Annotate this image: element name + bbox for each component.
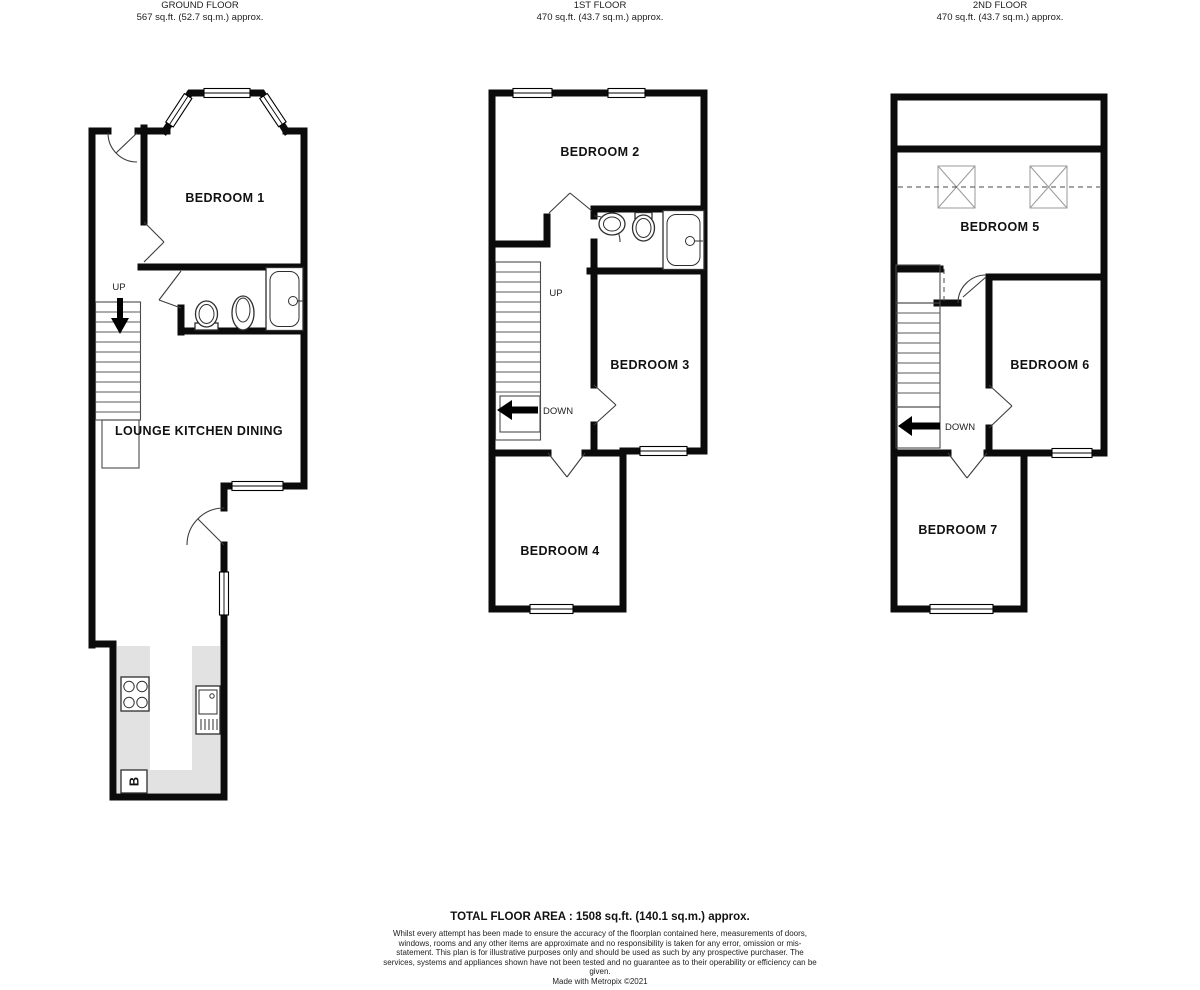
- side-window: [220, 572, 229, 615]
- first-down-arrow-icon: [497, 400, 538, 420]
- bath-icon: [266, 268, 303, 331]
- ground-floor-plan: UP: [92, 89, 304, 798]
- landing-door: [944, 269, 986, 303]
- first-floor-plan: UP DOWN BEDROOM 2 BEDROOM 3 BEDROOM 4: [492, 89, 704, 614]
- bedroom-1-door: [144, 222, 164, 262]
- second-floor-plan: DOWN BEDROOM 5 BEDROOM 6 BEDROOM 7: [894, 97, 1104, 614]
- first-toilet-icon: [633, 213, 655, 242]
- bathroom-door: [159, 271, 181, 308]
- bay-window: [166, 89, 286, 127]
- entrance-door: [108, 133, 137, 162]
- total-floor-area: TOTAL FLOOR AREA : 1508 sq.ft. (140.1 sq…: [0, 910, 1200, 925]
- footer: TOTAL FLOOR AREA : 1508 sq.ft. (140.1 sq…: [0, 910, 1200, 987]
- bedroom-7-window: [930, 605, 993, 614]
- disclaimer-text: Whilst every attempt has been made to en…: [382, 929, 818, 977]
- hob-icon: [121, 677, 149, 711]
- bedroom-4-door: [548, 453, 585, 477]
- room-label-bedroom-5: BEDROOM 5: [960, 220, 1039, 234]
- up-label: UP: [112, 282, 125, 293]
- boiler-icon: B: [121, 770, 147, 793]
- metropix-credit: Made with Metropix ©2021: [0, 977, 1200, 987]
- first-down-label: DOWN: [543, 406, 573, 417]
- loft-skylights: [898, 166, 1100, 208]
- first-up-label: UP: [549, 288, 562, 299]
- bedroom-4-window: [530, 605, 573, 614]
- bedroom-2-door: [549, 193, 592, 213]
- room-label-bedroom-6: BEDROOM 6: [1010, 358, 1089, 372]
- room-label-bedroom-2: BEDROOM 2: [560, 145, 639, 159]
- bedroom-3-door: [594, 385, 616, 425]
- room-label-lounge-kitchen-dining: LOUNGE KITCHEN DINING: [115, 424, 283, 438]
- bedroom-6-window: [1052, 449, 1092, 458]
- lounge-rear-window: [232, 482, 283, 491]
- second-down-label: DOWN: [945, 422, 975, 433]
- sink-icon: [196, 686, 220, 734]
- room-label-bedroom-3: BEDROOM 3: [610, 358, 689, 372]
- room-label-bedroom-4: BEDROOM 4: [520, 544, 599, 558]
- bedroom-7-door: [948, 453, 987, 478]
- up-arrow-icon: [111, 298, 129, 334]
- bedroom-6-door: [989, 385, 1012, 428]
- first-basin-icon: [599, 213, 625, 235]
- room-label-bedroom-1: BEDROOM 1: [185, 191, 264, 205]
- basin-icon: [232, 296, 254, 330]
- bedroom-3-window: [640, 447, 687, 456]
- floorplan-page: GROUND FLOOR 567 sq.ft. (52.7 sq.m.) app…: [0, 0, 1200, 990]
- toilet-icon: [195, 301, 218, 330]
- first-bath-icon: [663, 211, 704, 270]
- second-staircase: [896, 265, 940, 448]
- lounge-door: [187, 508, 224, 545]
- second-down-arrow-icon: [898, 416, 940, 436]
- boiler-label: B: [127, 777, 142, 786]
- floorplan-drawing: UP: [0, 0, 1200, 990]
- room-label-bedroom-7: BEDROOM 7: [918, 523, 997, 537]
- kitchen-units: B: [117, 646, 220, 793]
- first-floor-walls: [492, 93, 704, 609]
